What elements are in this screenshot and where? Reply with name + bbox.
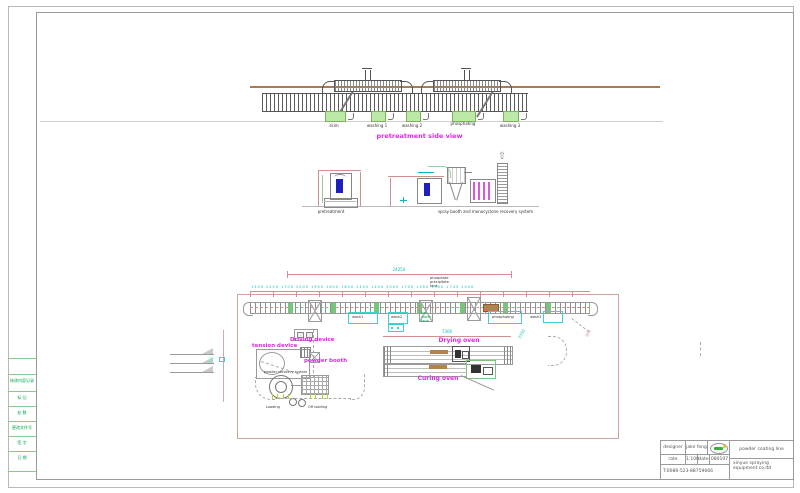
conveyor-left-turn bbox=[243, 302, 253, 316]
plan-left-line bbox=[223, 330, 224, 402]
dim-line bbox=[360, 172, 361, 206]
company-line: equipment co.ltd bbox=[733, 466, 796, 471]
tank-washing3 bbox=[503, 111, 519, 122]
overall-dim-label: 24254 bbox=[384, 268, 414, 273]
tank-washing2 bbox=[406, 111, 421, 122]
section-label: pretreatment bbox=[303, 210, 359, 215]
plan-tank-label: wash3 bbox=[530, 315, 552, 319]
dim-line-green bbox=[322, 175, 323, 203]
revision-row-label: 日 期 bbox=[17, 455, 26, 460]
fan-housing bbox=[483, 367, 493, 375]
drain-hook bbox=[521, 113, 527, 120]
fan-housing bbox=[462, 351, 469, 359]
oven-end-hatch bbox=[504, 347, 512, 364]
tank-label: washing 1 bbox=[362, 124, 392, 129]
dim-line bbox=[318, 170, 319, 206]
designer-value: jake feng bbox=[686, 441, 708, 455]
curing-oven-label: Curing oven bbox=[413, 376, 463, 383]
cyclone-inner bbox=[275, 381, 287, 393]
revision-strip: 修改内容记录 标 记 处 数 更改文件号 签 字 日 期 bbox=[8, 358, 37, 479]
exhaust-stack bbox=[497, 163, 508, 204]
revision-row-label: 修改内容记录 bbox=[10, 378, 34, 383]
datum-mark bbox=[219, 357, 225, 362]
tank-label: skim bbox=[319, 124, 349, 129]
station-mark bbox=[272, 394, 278, 399]
drying-oven-label: Drying oven bbox=[433, 338, 485, 345]
drain-hook bbox=[388, 113, 394, 120]
line bbox=[464, 172, 472, 173]
logo-cell bbox=[708, 441, 729, 455]
elevation-title: pretreatment side view bbox=[362, 133, 477, 140]
workpiece-blue bbox=[336, 179, 343, 193]
off-loading-label: Off loading bbox=[308, 405, 340, 409]
rate-label: rate bbox=[661, 455, 686, 465]
drain-hook bbox=[423, 113, 429, 120]
dot bbox=[391, 327, 393, 329]
line bbox=[291, 385, 301, 386]
booth-base bbox=[324, 198, 358, 208]
section-arrow-flag bbox=[202, 357, 213, 363]
workpiece-blue bbox=[424, 183, 430, 196]
company-name: xinyue spraying equipment co.ltd bbox=[730, 459, 796, 481]
loading-label: Loading bbox=[266, 405, 292, 409]
exhaust-pipe bbox=[365, 70, 371, 81]
logo-yellow-dot bbox=[723, 445, 726, 448]
pipe-cap bbox=[461, 68, 471, 69]
burner-bar bbox=[430, 350, 448, 354]
dim-line bbox=[318, 170, 361, 171]
exhaust-pipe bbox=[464, 70, 470, 81]
oven-end-hatch bbox=[384, 364, 390, 376]
powder-recovery-label: powder recovery system bbox=[264, 370, 326, 374]
dim-line bbox=[287, 274, 512, 275]
oven-end-hatch bbox=[384, 347, 392, 364]
date-value: 080107 bbox=[710, 455, 729, 465]
oven-rail bbox=[384, 355, 512, 356]
tank-label: washing 3 bbox=[495, 124, 525, 129]
station-mark bbox=[322, 394, 328, 399]
oven-rail bbox=[384, 351, 512, 352]
fan-motor bbox=[455, 350, 461, 358]
dim-line-cyan bbox=[403, 197, 404, 203]
section-arrow-line bbox=[170, 354, 214, 355]
note-line: tank bbox=[421, 319, 437, 323]
revision-row-label: 签 字 bbox=[17, 440, 26, 445]
title-block: designer jake feng rate 1:100 date 08010… bbox=[660, 440, 794, 480]
designer-label: designer bbox=[661, 441, 686, 455]
exhaust-duct bbox=[433, 80, 501, 92]
station-mark bbox=[283, 394, 289, 399]
revision-row-label: 标 记 bbox=[17, 395, 26, 400]
logo-green-bar bbox=[714, 447, 723, 450]
plan-tank-label: wash1 bbox=[352, 315, 374, 319]
plan-tank-label: phosphating bbox=[492, 315, 522, 319]
section-arrow-flag bbox=[202, 366, 213, 372]
up-arrow-icon: ⇧ bbox=[495, 151, 509, 163]
hot-water-tank-note: hot water tank bbox=[421, 311, 437, 323]
curing-fan-unit bbox=[466, 360, 496, 379]
oven-dim-label: 7300 bbox=[435, 330, 459, 335]
transfer-station bbox=[467, 297, 481, 321]
drawing-sheet: 修改内容记录 标 记 处 数 更改文件号 签 字 日 期 skim washin… bbox=[0, 0, 800, 493]
dot bbox=[397, 327, 399, 329]
dim-tick-row bbox=[250, 291, 590, 297]
filter-cartridge-box bbox=[470, 179, 496, 203]
recovery-filter-grid bbox=[301, 375, 329, 395]
line bbox=[324, 201, 356, 202]
phone-number: T:0086-523-88759666 bbox=[661, 465, 731, 479]
oven-rail bbox=[384, 368, 466, 369]
segment-dims: 1500 1250 1700 2000 1950 1600 1800 1445 … bbox=[251, 285, 591, 289]
section-label: spray booth and monocyclone recovery sys… bbox=[418, 210, 553, 215]
dim-tick bbox=[287, 271, 288, 278]
duct-elbow bbox=[322, 81, 335, 93]
pipe-cap bbox=[362, 68, 372, 69]
oven-rail bbox=[384, 372, 466, 373]
dim-line bbox=[390, 178, 391, 206]
project-title: powder coating line bbox=[730, 441, 793, 459]
duct-elbow bbox=[499, 81, 512, 93]
transfer-station bbox=[308, 300, 322, 322]
rate-value: 1:100 bbox=[686, 455, 698, 465]
section-arrow-flag bbox=[202, 348, 213, 354]
conveyor-right-turn bbox=[588, 302, 598, 316]
stray-dash-mark bbox=[700, 342, 701, 356]
ground-line bbox=[40, 121, 663, 122]
company-logo bbox=[710, 443, 728, 454]
tank-washing1 bbox=[371, 111, 386, 122]
burner-bar bbox=[429, 365, 447, 369]
dim-tick bbox=[511, 271, 512, 278]
revision-row-label: 更改文件号 bbox=[12, 425, 32, 430]
station-mark bbox=[310, 394, 316, 399]
plan-tank-label: wash2 bbox=[391, 315, 413, 319]
dosing-box bbox=[388, 324, 404, 332]
section-arrow-line bbox=[170, 372, 214, 373]
fan-motor bbox=[471, 365, 481, 373]
tank-skim bbox=[325, 111, 346, 122]
drain-hook bbox=[478, 113, 484, 120]
date-label: date bbox=[698, 455, 710, 465]
tank-label: washing 2 bbox=[397, 124, 427, 129]
revision-row-label: 处 数 bbox=[17, 410, 26, 415]
section-arrow-line bbox=[170, 363, 214, 364]
duct-elbow bbox=[421, 81, 434, 93]
powder-booth-label: powder booth bbox=[304, 358, 347, 365]
pump-symbol bbox=[298, 399, 306, 407]
revision-row: 日 期 bbox=[8, 451, 36, 472]
filter-elements bbox=[473, 182, 493, 200]
tank-label: phosphating bbox=[448, 122, 478, 127]
exhaust-duct bbox=[334, 80, 402, 92]
drain-hook bbox=[348, 113, 354, 120]
duct-elbow bbox=[400, 81, 413, 93]
